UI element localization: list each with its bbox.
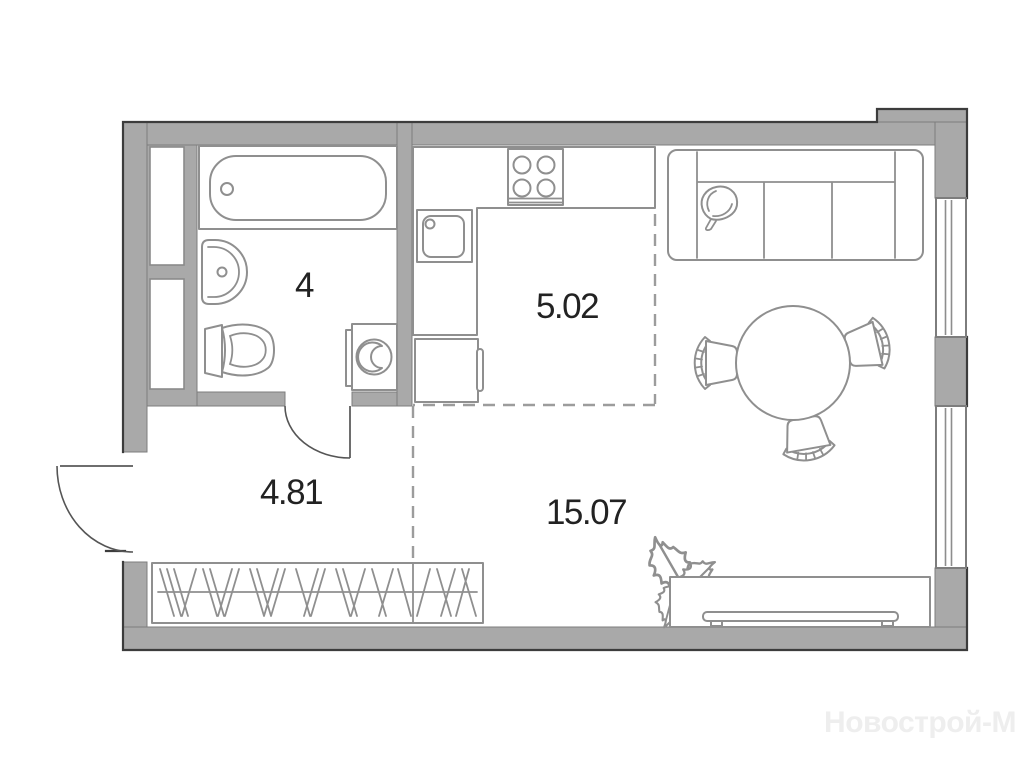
hallway-area-label: 4.81 bbox=[260, 473, 322, 512]
kitchen-sink bbox=[417, 210, 472, 262]
living-area-label: 15.07 bbox=[546, 493, 626, 532]
developer-watermark: Новострой-М bbox=[824, 706, 1016, 739]
dining-chair bbox=[695, 337, 737, 389]
sofa bbox=[668, 150, 923, 260]
fridge bbox=[415, 339, 483, 402]
window-upper bbox=[936, 198, 966, 337]
window-lower bbox=[936, 406, 966, 568]
floor-plan: 4 5.02 4.81 15.07 Новострой-М bbox=[0, 0, 1024, 768]
dining-table bbox=[736, 306, 850, 420]
tv-console bbox=[670, 577, 930, 627]
stove bbox=[508, 149, 563, 205]
duct-shaft bbox=[150, 147, 184, 265]
entry-door bbox=[57, 466, 133, 552]
toilet bbox=[205, 325, 274, 377]
bathroom-door bbox=[285, 406, 350, 458]
dining-chair bbox=[778, 414, 837, 465]
duct-shaft bbox=[150, 279, 184, 389]
bathroom-sink bbox=[202, 240, 247, 304]
kitchen-area-label: 5.02 bbox=[536, 287, 598, 326]
bathroom-area-label: 4 bbox=[295, 266, 314, 305]
wardrobe bbox=[152, 563, 483, 623]
bathtub bbox=[199, 146, 397, 229]
washing-machine bbox=[346, 324, 397, 390]
